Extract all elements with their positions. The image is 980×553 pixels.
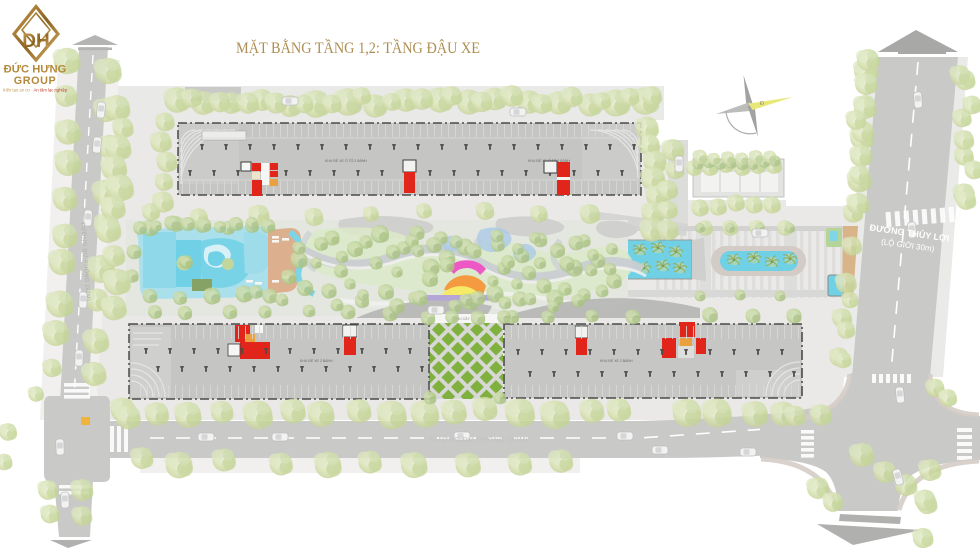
- svg-text:MẶT BẰNG TẦNG 1,2: TẦNG ĐẬU XE: MẶT BẰNG TẦNG 1,2: TẦNG ĐẬU XE: [236, 38, 480, 57]
- svg-text:ĐỨC HƯNG: ĐỨC HƯNG: [4, 63, 67, 76]
- svg-text:KHU ĐỂ XE 2 BÁNH: KHU ĐỂ XE 2 BÁNH: [300, 358, 333, 363]
- svg-text:KHU ĐỂ XE 2 BÁNH: KHU ĐỂ XE 2 BÁNH: [600, 358, 633, 363]
- svg-text:KHU ĐỂ XE Ô TÔ 2 BÁNH: KHU ĐỂ XE Ô TÔ 2 BÁNH: [325, 158, 367, 163]
- svg-text:GROUP: GROUP: [14, 75, 57, 87]
- svg-text:ĐƯỜNG DỰ PHÒNG (32M): ĐƯỜNG DỰ PHÒNG (32M): [430, 435, 528, 444]
- svg-text:Đ: Đ: [760, 101, 764, 107]
- svg-text:Kiến tạo an cư - An tâm lạc ng: Kiến tạo an cư - An tâm lạc nghiệp: [3, 88, 68, 93]
- svg-text:DH: DH: [22, 31, 49, 52]
